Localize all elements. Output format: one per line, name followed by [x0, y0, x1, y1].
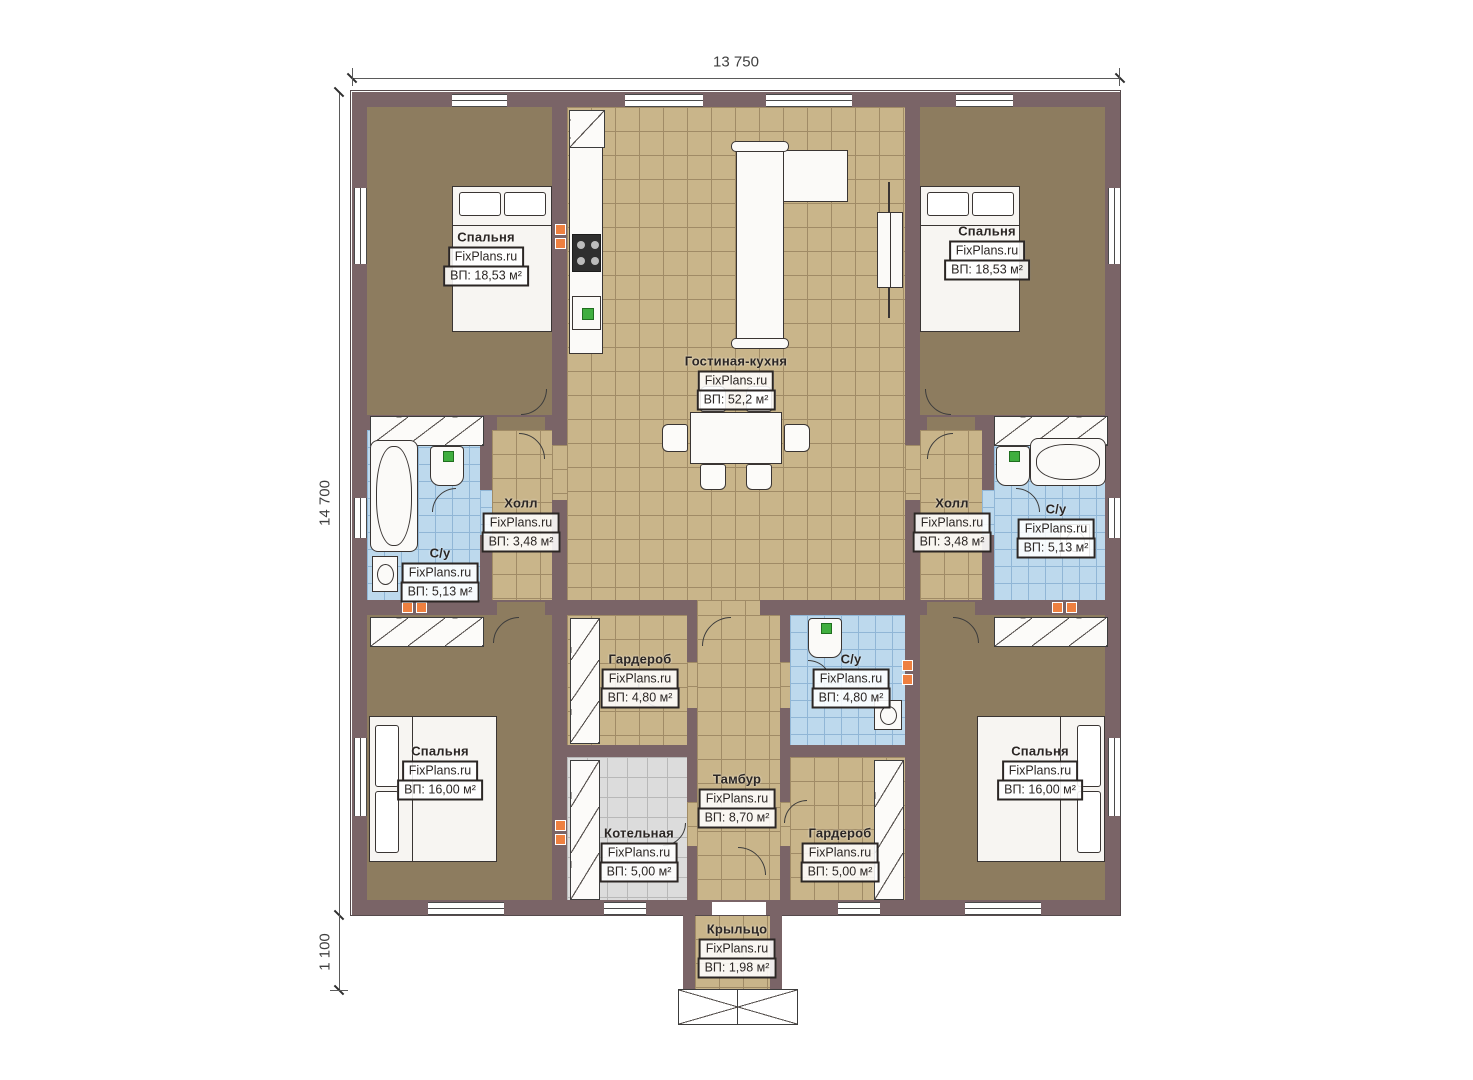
door-opening — [687, 802, 697, 846]
room-name: С/у — [812, 652, 891, 667]
room-name: Спальня — [443, 230, 529, 245]
vent — [1052, 602, 1063, 613]
wall — [687, 615, 697, 900]
room-name: С/у — [401, 546, 480, 561]
window — [354, 738, 367, 816]
room-area: ВП: 16,00 м² — [397, 780, 483, 801]
window — [766, 94, 852, 107]
kitchen-cabinet — [569, 110, 605, 148]
room-brand: FixPlans.ru — [699, 939, 776, 960]
vent — [416, 602, 427, 613]
window — [1108, 498, 1121, 538]
room-brand: FixPlans.ru — [802, 843, 879, 864]
window — [1108, 188, 1121, 264]
chair — [700, 464, 726, 490]
room-brand: FixPlans.ru — [601, 843, 678, 864]
room-label-hall-right: Холл FixPlans.ru ВП: 3,48 м² — [913, 496, 992, 553]
vent — [555, 238, 566, 249]
room-area: ВП: 3,48 м² — [913, 532, 992, 553]
vent — [555, 834, 566, 845]
room-label-bathroom-center: С/у FixPlans.ru ВП: 4,80 м² — [812, 652, 891, 709]
sofa-armrest — [731, 141, 789, 152]
door-opening — [697, 600, 760, 615]
window — [965, 902, 1041, 915]
closet — [994, 617, 1108, 647]
room-brand: FixPlans.ru — [402, 563, 479, 584]
washbasin — [372, 556, 398, 592]
room-label-wardrobe-right: Гардероб FixPlans.ru ВП: 5,00 м² — [801, 826, 880, 883]
wall — [683, 915, 695, 989]
room-label-bathroom-right: С/у FixPlans.ru ВП: 5,13 м² — [1017, 502, 1096, 559]
window — [354, 498, 367, 538]
closet — [570, 760, 600, 900]
window — [1108, 738, 1121, 816]
room-label-bedroom-top-left: Спальня FixPlans.ru ВП: 18,53 м² — [443, 230, 529, 287]
room-area: ВП: 16,00 м² — [997, 780, 1083, 801]
room-name: Гостиная-кухня — [685, 354, 787, 369]
room-label-wardrobe-left: Гардероб FixPlans.ru ВП: 4,80 м² — [601, 652, 680, 709]
wall — [790, 745, 905, 757]
vent — [1066, 602, 1077, 613]
room-area: ВП: 18,53 м² — [443, 266, 529, 287]
room-label-hall-left: Холл FixPlans.ru ВП: 3,48 м² — [482, 496, 561, 553]
room-area: ВП: 5,00 м² — [600, 862, 679, 883]
dimension-top-label: 13 750 — [713, 54, 759, 71]
vent — [555, 224, 566, 235]
toilet — [430, 446, 464, 486]
room-label-living-kitchen: Гостиная-кухня FixPlans.ru ВП: 52,2 м² — [685, 354, 787, 411]
wall — [567, 600, 697, 615]
closet — [570, 618, 600, 744]
room-area: ВП: 4,80 м² — [601, 688, 680, 709]
dimension-bottom-left-label: 1 100 — [317, 933, 334, 971]
room-brand: FixPlans.ru — [448, 247, 525, 268]
room-label-porch: Крыльцо FixPlans.ru ВП: 1,98 м² — [698, 922, 777, 979]
dimension-left-label: 14 700 — [317, 480, 334, 526]
room-label-vestibule: Тамбур FixPlans.ru ВП: 8,70 м² — [698, 772, 777, 829]
bathtub — [1030, 438, 1106, 486]
window — [452, 94, 507, 107]
window — [354, 188, 367, 264]
dimension-line-bottom-left — [339, 915, 340, 990]
tv-panel — [877, 212, 903, 288]
room-area: ВП: 18,53 м² — [944, 260, 1030, 281]
room-area: ВП: 5,00 м² — [801, 862, 880, 883]
door-opening — [927, 417, 975, 430]
window — [428, 902, 504, 915]
room-brand: FixPlans.ru — [698, 371, 775, 392]
vent — [902, 674, 913, 685]
room-brand: FixPlans.ru — [1018, 519, 1095, 540]
door-opening — [497, 417, 545, 430]
room-name: Спальня — [997, 744, 1083, 759]
room-brand: FixPlans.ru — [402, 761, 479, 782]
door-opening — [552, 445, 567, 500]
vent — [902, 660, 913, 671]
room-area: ВП: 1,98 м² — [698, 958, 777, 979]
window — [625, 94, 703, 107]
kitchen-sink — [572, 296, 601, 330]
room-name: Спальня — [397, 744, 483, 759]
room-name: Гардероб — [801, 826, 880, 841]
bathtub — [370, 440, 418, 552]
room-brand: FixPlans.ru — [699, 789, 776, 810]
room-name: Крыльцо — [698, 922, 777, 937]
wall — [760, 600, 905, 615]
dimension-ext — [1119, 68, 1120, 86]
dimension-ext — [330, 990, 348, 991]
room-area: ВП: 8,70 м² — [698, 808, 777, 829]
dimension-line-left — [339, 92, 340, 915]
room-area: ВП: 4,80 м² — [812, 688, 891, 709]
room-brand: FixPlans.ru — [914, 513, 991, 534]
room-label-boiler-room: Котельная FixPlans.ru ВП: 5,00 м² — [600, 826, 679, 883]
dimension-line-top — [352, 78, 1120, 79]
room-area: ВП: 52,2 м² — [697, 390, 776, 411]
room-area: ВП: 5,13 м² — [401, 582, 480, 603]
room-brand: FixPlans.ru — [1002, 761, 1079, 782]
sofa-armrest — [731, 338, 789, 349]
wall — [905, 615, 920, 900]
chair — [746, 464, 772, 490]
room-area: ВП: 5,13 м² — [1017, 538, 1096, 559]
entry-door-opening — [712, 902, 766, 915]
room-label-bedroom-bottom-right: Спальня FixPlans.ru ВП: 16,00 м² — [997, 744, 1083, 801]
chair — [662, 424, 688, 452]
room-name: Холл — [482, 496, 561, 511]
room-name: Спальня — [944, 224, 1030, 239]
room-label-bedroom-bottom-left: Спальня FixPlans.ru ВП: 16,00 м² — [397, 744, 483, 801]
vent — [402, 602, 413, 613]
dining-table — [690, 412, 782, 464]
wall — [567, 745, 687, 757]
wall — [780, 615, 790, 900]
sofa — [736, 150, 784, 340]
porch-steps — [678, 989, 798, 1025]
floor-plan: Спальня FixPlans.ru ВП: 18,53 м² Спальня… — [0, 0, 1473, 1080]
toilet — [996, 446, 1030, 486]
vent — [555, 820, 566, 831]
window — [838, 902, 880, 915]
room-brand: FixPlans.ru — [483, 513, 560, 534]
room-brand: FixPlans.ru — [602, 669, 679, 690]
room-label-bathroom-left: С/у FixPlans.ru ВП: 5,13 м² — [401, 546, 480, 603]
room-name: Гардероб — [601, 652, 680, 667]
room-brand: FixPlans.ru — [949, 241, 1026, 262]
door-opening — [687, 662, 697, 708]
room-name: Котельная — [600, 826, 679, 841]
window — [604, 902, 646, 915]
closet — [370, 617, 484, 647]
chair — [784, 424, 810, 452]
wall — [552, 615, 567, 900]
room-label-bedroom-top-right: Спальня FixPlans.ru ВП: 18,53 м² — [944, 224, 1030, 281]
room-name: С/у — [1017, 502, 1096, 517]
window — [956, 94, 1013, 107]
room-name: Тамбур — [698, 772, 777, 787]
room-name: Холл — [913, 496, 992, 511]
dimension-ext — [352, 68, 353, 86]
stove — [572, 234, 601, 272]
door-opening — [497, 602, 545, 615]
door-opening — [905, 445, 920, 500]
room-area: ВП: 3,48 м² — [482, 532, 561, 553]
room-brand: FixPlans.ru — [813, 669, 890, 690]
door-opening — [927, 602, 975, 615]
